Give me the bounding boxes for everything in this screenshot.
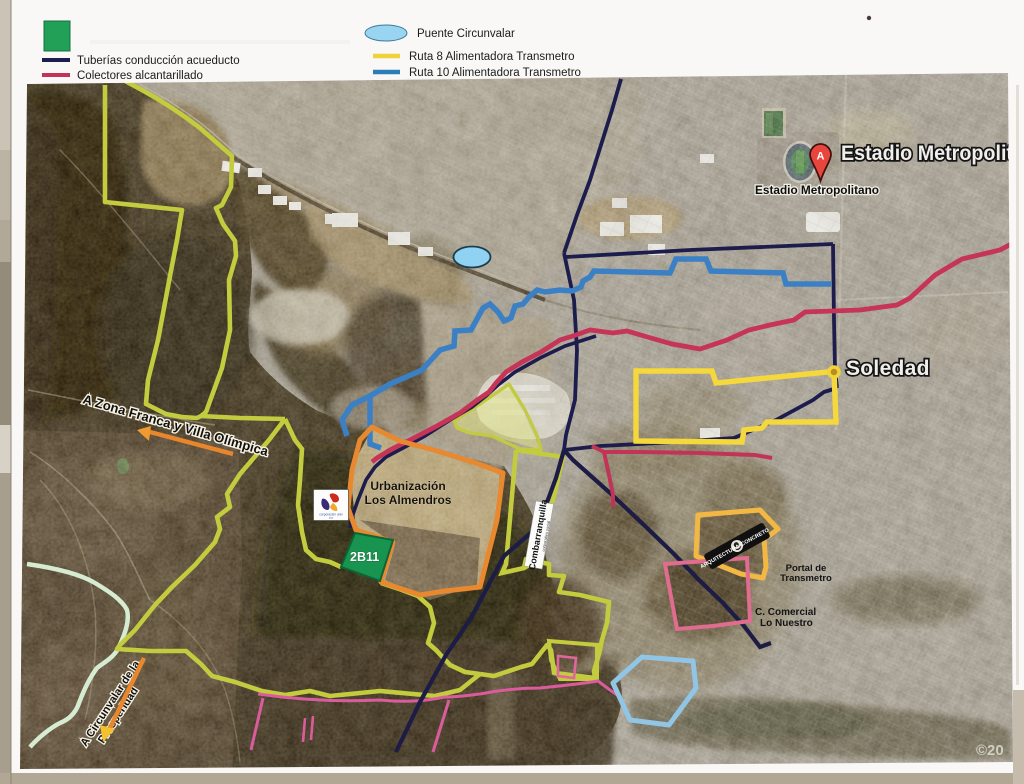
- svg-text:2B11: 2B11: [350, 550, 379, 564]
- svg-text:Urbanización: Urbanización: [370, 479, 445, 493]
- svg-text:Puente Circunvalar: Puente Circunvalar: [417, 28, 515, 40]
- svg-text:Ruta 8 Alimentadora Transmetro: Ruta 8 Alimentadora Transmetro: [409, 51, 575, 63]
- svg-text:©20: ©20: [976, 742, 1004, 759]
- svg-text:Colectores alcantarillado: Colectores alcantarillado: [77, 70, 203, 82]
- svg-text:C. Comercial: C. Comercial: [755, 607, 816, 618]
- svg-text:cuc: cuc: [329, 516, 334, 520]
- svg-text:Soledad: Soledad: [846, 357, 930, 380]
- svg-text:Tuberías conducción acueducto: Tuberías conducción acueducto: [77, 55, 240, 67]
- svg-text:Transmetro: Transmetro: [780, 573, 832, 584]
- svg-text:Lo Nuestro: Lo Nuestro: [760, 618, 813, 629]
- svg-text:Estadio Metropolit: Estadio Metropolit: [841, 141, 1013, 165]
- svg-text:Los Almendros: Los Almendros: [365, 493, 452, 507]
- svg-text:Ruta 10 Alimentadora Transmetr: Ruta 10 Alimentadora Transmetro: [409, 67, 581, 79]
- svg-text:A: A: [817, 151, 825, 163]
- svg-text:Estadio Metropolitano: Estadio Metropolitano: [755, 183, 879, 197]
